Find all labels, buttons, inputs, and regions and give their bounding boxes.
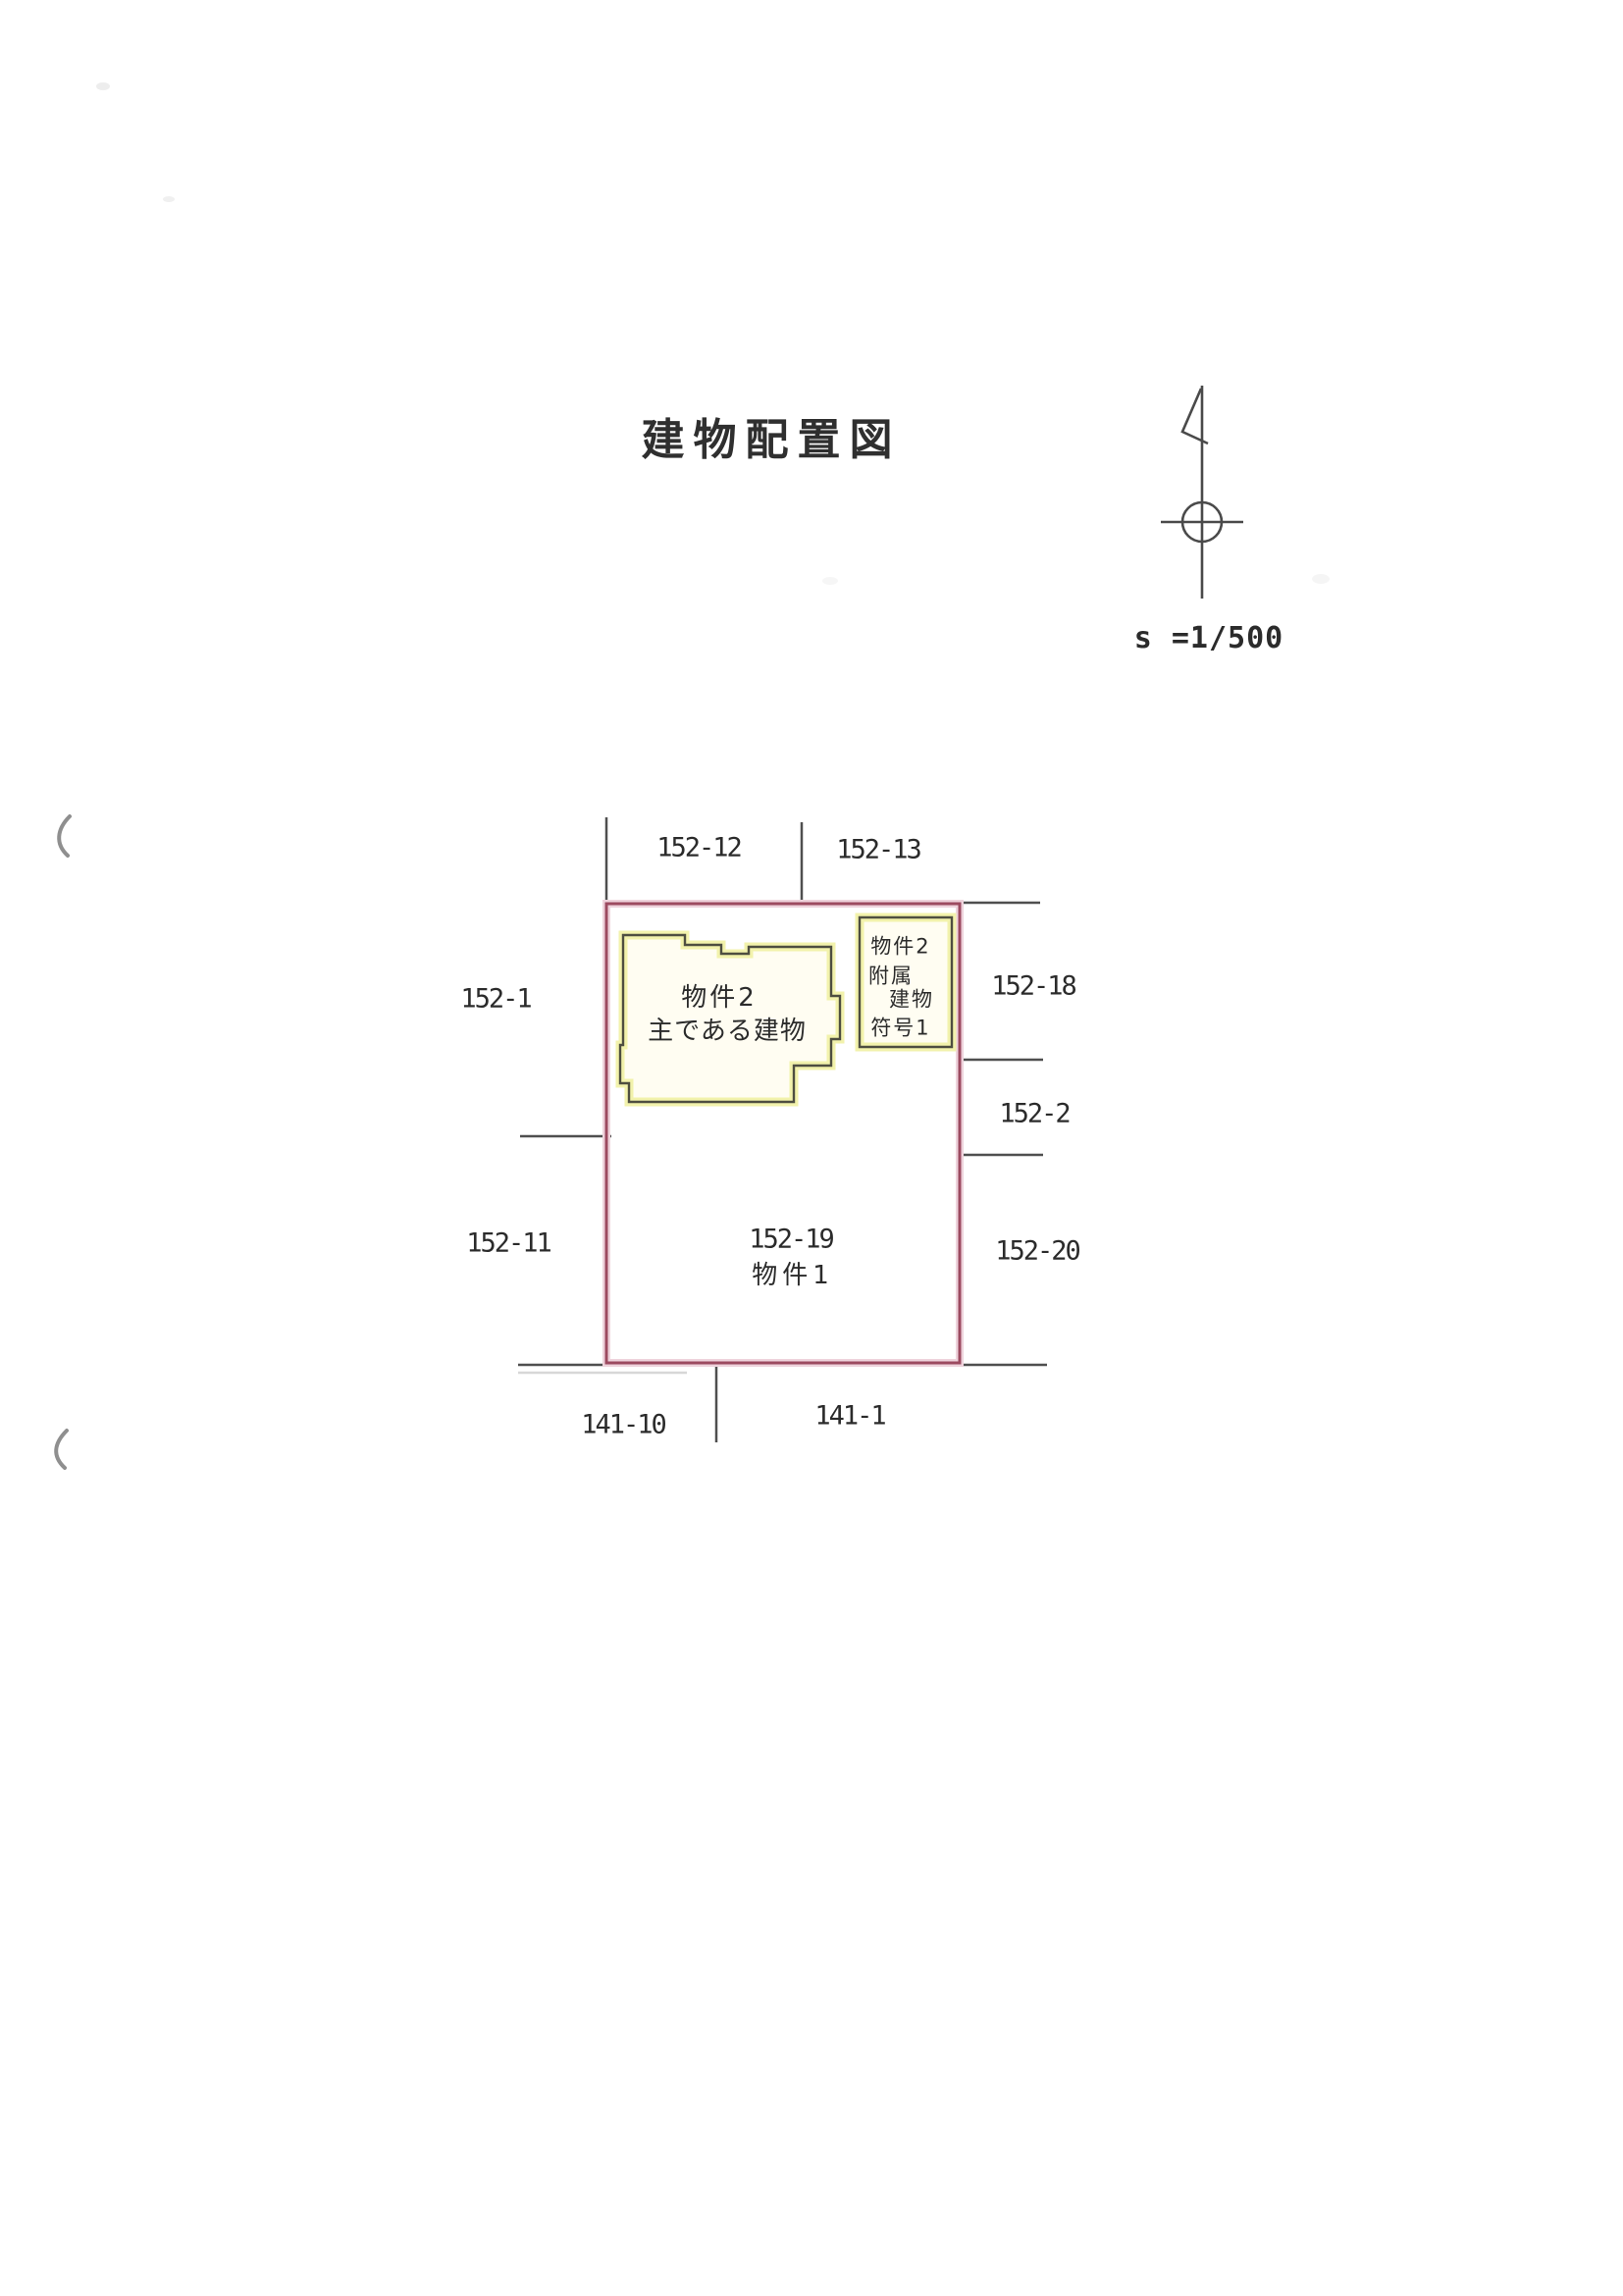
parcel-label-141-10: 141-10 <box>581 1412 665 1438</box>
parcel-label-152-11: 152-11 <box>466 1230 550 1257</box>
parcel-label-152-20: 152-20 <box>995 1238 1079 1265</box>
parcel-label-141-1: 141-1 <box>814 1403 884 1430</box>
inner-parcel-number: 152-19 <box>749 1226 833 1253</box>
scanned-site-plan-page: 建物配置図 s =1/500 152-12 152-13 152-1 152-1… <box>0 0 1623 2296</box>
punch-hole-mark <box>59 816 70 856</box>
scan-smudge <box>822 577 838 585</box>
lot-division-lines <box>518 817 1047 1442</box>
attached-building-label-line4: 符号1 <box>870 1018 930 1039</box>
north-arrow-icon <box>1161 386 1243 599</box>
attached-building-label-line2: 附属 <box>868 966 914 987</box>
main-building-label-line1: 物件2 <box>681 985 758 1011</box>
main-building-label-line2: 主である建物 <box>648 1018 807 1044</box>
parcel-label-152-18: 152-18 <box>991 973 1075 1000</box>
north-arrow-pennant <box>1182 389 1208 444</box>
attached-building-label-line3: 建物 <box>889 990 934 1011</box>
parcel-label-152-13: 152-13 <box>836 837 920 863</box>
site-plan-drawing <box>0 0 1623 2296</box>
scan-smudge <box>163 196 175 202</box>
page-title: 建物配置図 <box>642 419 902 462</box>
parcel-label-152-1: 152-1 <box>460 986 530 1013</box>
inner-parcel-name: 物件1 <box>752 1263 834 1288</box>
parcel-label-152-2: 152-2 <box>999 1101 1069 1127</box>
parcel-label-152-12: 152-12 <box>656 835 741 861</box>
scan-smudge <box>1312 574 1330 584</box>
scan-smudge <box>96 82 110 90</box>
punch-hole-mark <box>56 1431 67 1468</box>
scale-label: s =1/500 <box>1134 624 1284 653</box>
attached-building-label-line1: 物件2 <box>870 937 930 958</box>
